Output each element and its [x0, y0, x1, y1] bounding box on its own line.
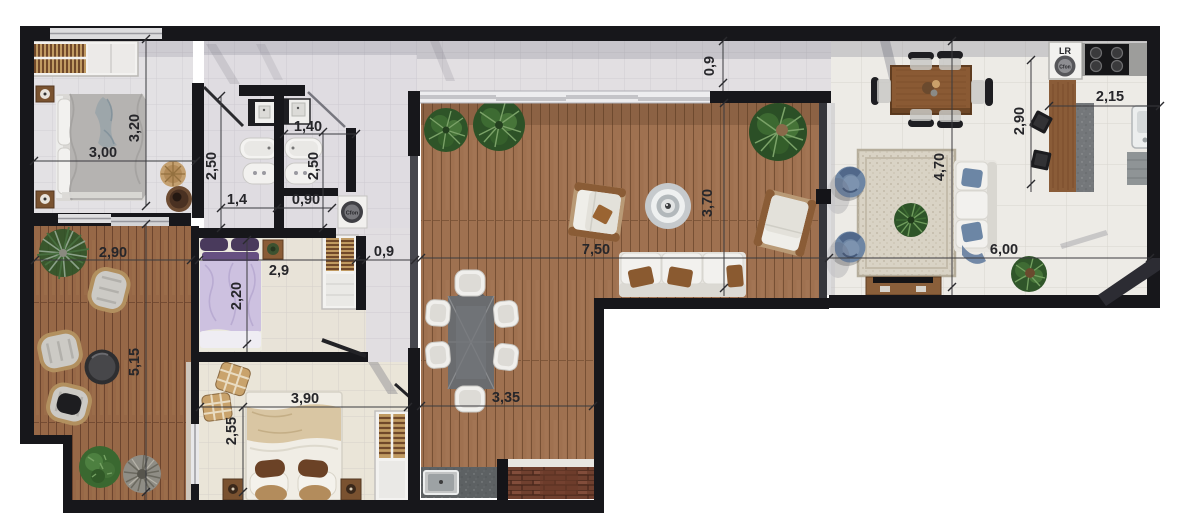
svg-text:1,40: 1,40: [294, 119, 322, 135]
svg-text:6,00: 6,00: [990, 242, 1018, 258]
svg-text:2,90: 2,90: [1012, 107, 1028, 135]
svg-text:0,9: 0,9: [374, 244, 394, 260]
svg-text:1,4: 1,4: [227, 192, 247, 208]
svg-text:3,35: 3,35: [492, 390, 520, 406]
svg-text:3,70: 3,70: [700, 189, 716, 217]
svg-text:2,9: 2,9: [269, 263, 289, 279]
svg-text:0,90: 0,90: [292, 192, 320, 208]
svg-text:2,55: 2,55: [224, 417, 240, 445]
svg-text:2,20: 2,20: [229, 282, 245, 310]
svg-text:0,9: 0,9: [702, 56, 718, 76]
svg-text:Cfon: Cfon: [346, 211, 359, 217]
svg-text:Cfon: Cfon: [1059, 65, 1070, 71]
svg-text:7,50: 7,50: [582, 242, 610, 258]
svg-text:LR: LR: [1059, 46, 1071, 56]
svg-text:2,50: 2,50: [306, 152, 322, 180]
svg-text:2,90: 2,90: [99, 245, 127, 261]
svg-text:4,70: 4,70: [932, 153, 948, 181]
svg-text:3,00: 3,00: [89, 145, 117, 161]
svg-text:3,20: 3,20: [127, 114, 143, 142]
svg-text:2,15: 2,15: [1096, 89, 1124, 105]
svg-text:5,15: 5,15: [127, 348, 143, 376]
svg-text:3,90: 3,90: [291, 391, 319, 407]
svg-text:2,50: 2,50: [204, 152, 220, 180]
